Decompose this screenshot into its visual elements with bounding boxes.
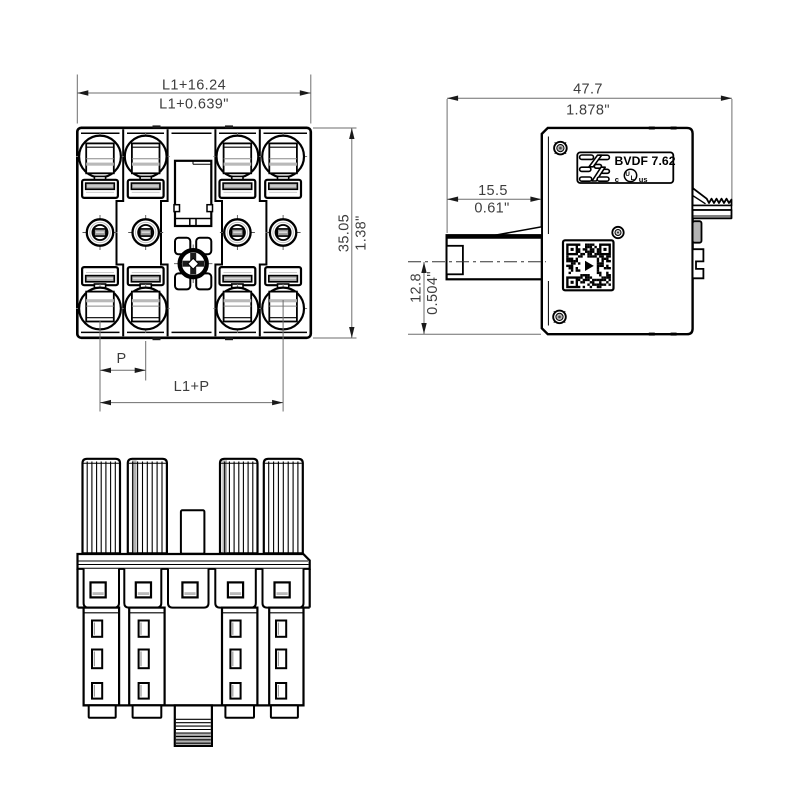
svg-text:P: P — [116, 351, 126, 367]
svg-text:35.05: 35.05 — [337, 214, 353, 252]
svg-text:1.878": 1.878" — [566, 103, 610, 119]
svg-text:L1+P: L1+P — [174, 379, 210, 395]
svg-text:15.5: 15.5 — [478, 183, 508, 199]
svg-text:BVDF 7.62: BVDF 7.62 — [615, 154, 676, 168]
svg-text:c: c — [615, 175, 619, 184]
svg-text:us: us — [639, 175, 648, 184]
svg-text:1.38": 1.38" — [354, 215, 370, 250]
svg-text:L1+16.24: L1+16.24 — [162, 78, 226, 94]
svg-text:0.504": 0.504" — [425, 271, 441, 315]
svg-text:L1+0.639": L1+0.639" — [159, 97, 229, 113]
svg-text:47.7: 47.7 — [573, 82, 603, 98]
svg-text:L: L — [631, 175, 635, 182]
svg-text:12.8: 12.8 — [409, 273, 425, 303]
svg-text:0.61": 0.61" — [474, 201, 509, 217]
